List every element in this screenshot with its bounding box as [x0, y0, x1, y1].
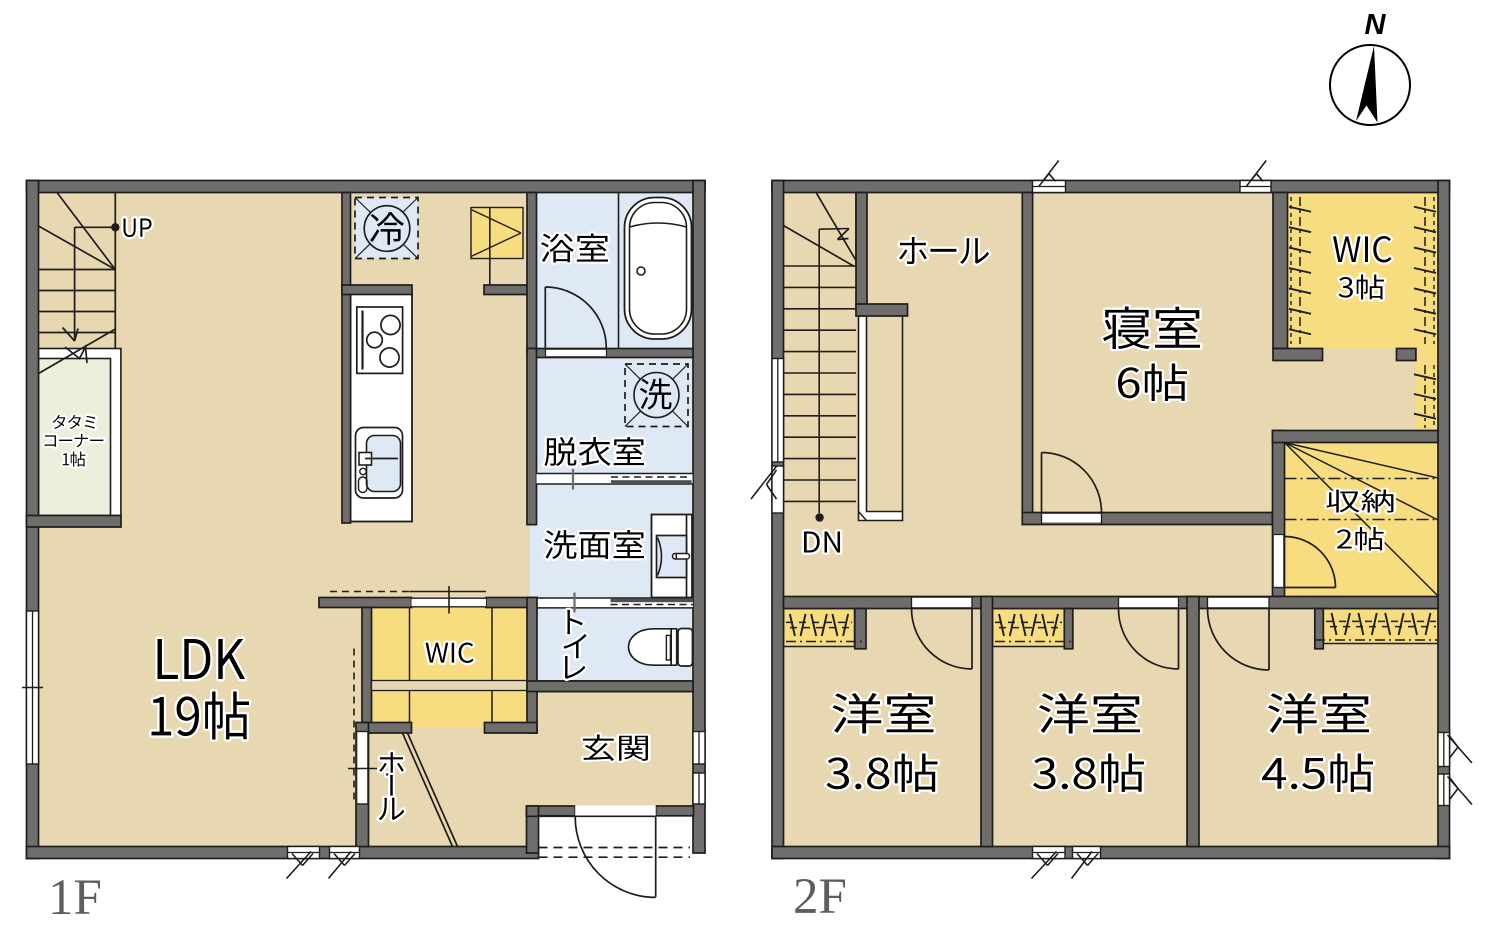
svg-text:N: N	[1365, 9, 1387, 41]
svg-text:1F: 1F	[48, 870, 102, 926]
svg-text:2F: 2F	[793, 869, 847, 925]
